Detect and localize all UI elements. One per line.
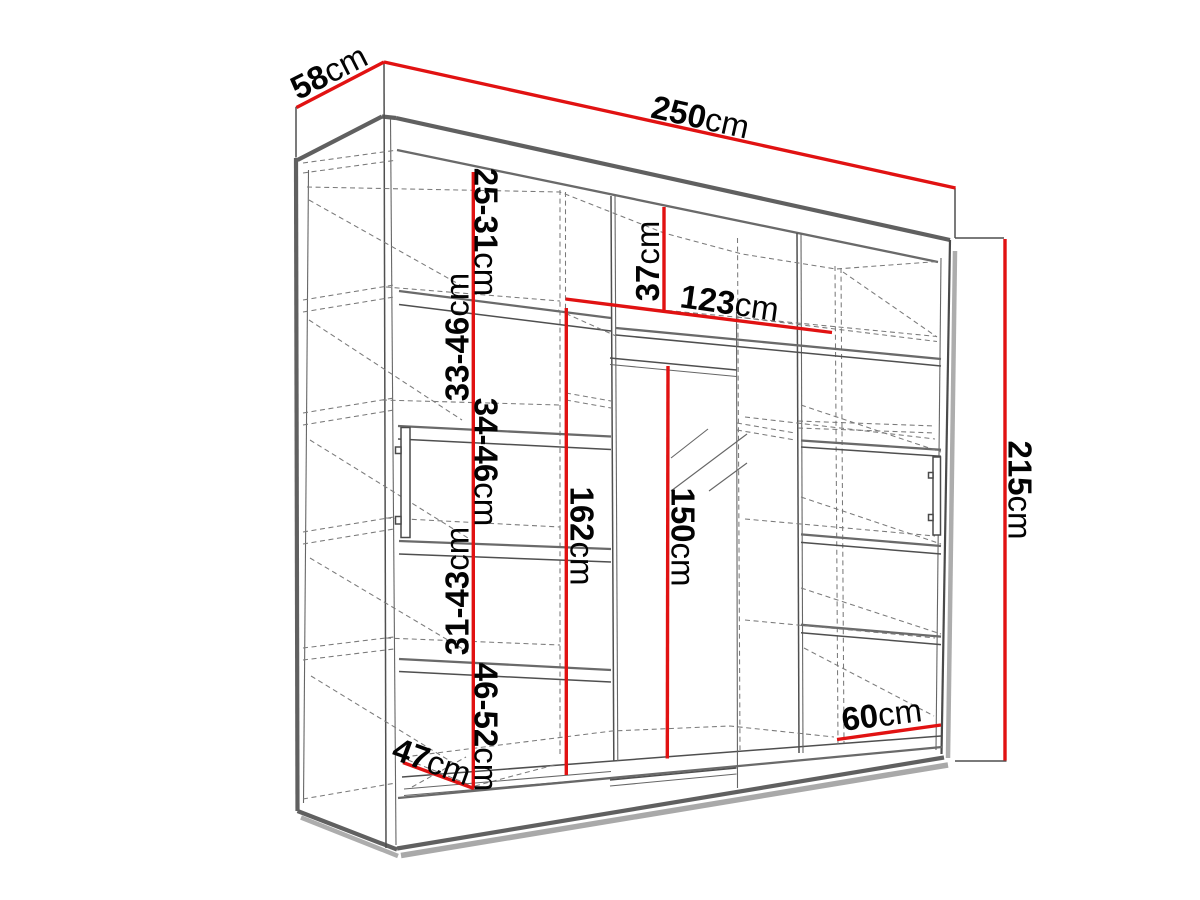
svg-text:162cm: 162cm xyxy=(563,486,600,585)
svg-text:37cm: 37cm xyxy=(629,221,666,302)
svg-text:150cm: 150cm xyxy=(665,487,702,586)
svg-text:33-46cm: 33-46cm xyxy=(439,273,476,401)
svg-text:215cm: 215cm xyxy=(1002,440,1039,539)
svg-text:250cm: 250cm xyxy=(648,88,753,146)
svg-text:46-52cm: 46-52cm xyxy=(468,663,505,791)
svg-text:47cm: 47cm xyxy=(388,730,477,792)
svg-text:34-46cm: 34-46cm xyxy=(468,398,505,526)
svg-text:58cm: 58cm xyxy=(284,37,373,107)
svg-text:123cm: 123cm xyxy=(678,277,781,327)
svg-text:31-43cm: 31-43cm xyxy=(439,527,476,655)
svg-text:60cm: 60cm xyxy=(839,691,924,738)
